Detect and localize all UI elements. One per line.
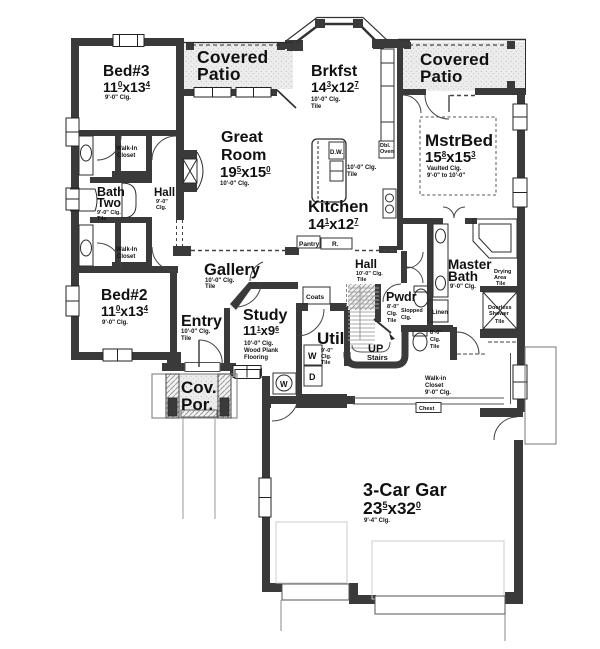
svg-text:Gallery: Gallery (204, 261, 261, 279)
svg-text:158x153: 158x153 (425, 149, 476, 166)
svg-text:Coats: Coats (306, 294, 324, 301)
svg-text:Chest: Chest (419, 406, 434, 412)
svg-text:Flooring: Flooring (244, 355, 268, 361)
svg-text:Closet: Closet (425, 383, 443, 389)
svg-text:Tile: Tile (205, 284, 216, 290)
svg-text:Pantry: Pantry (299, 241, 320, 248)
svg-text:Tile: Tile (496, 281, 505, 287)
svg-text:10'-0" Clg.: 10'-0" Clg. (311, 97, 341, 103)
svg-text:Bed#3: Bed#3 (103, 63, 150, 80)
svg-text:9'-0" Clg.: 9'-0" Clg. (102, 320, 128, 326)
svg-text:Bath: Bath (448, 269, 478, 284)
svg-text:3-Car Gar: 3-Car Gar (363, 480, 447, 500)
svg-text:Slopped: Slopped (401, 308, 423, 314)
svg-text:8'-0": 8'-0" (430, 330, 442, 336)
svg-text:Bed#2: Bed#2 (101, 287, 148, 304)
svg-text:235x320: 235x320 (363, 498, 421, 518)
svg-text:Tile: Tile (97, 216, 106, 222)
svg-text:10'-0" Clg.: 10'-0" Clg. (347, 165, 377, 171)
svg-text:9'-4" Clg.: 9'-4" Clg. (364, 518, 390, 524)
svg-text:110x134: 110x134 (103, 79, 151, 95)
svg-text:R.: R. (332, 241, 339, 248)
svg-text:Tile: Tile (357, 277, 366, 283)
svg-text:Wood Plank: Wood Plank (244, 348, 279, 354)
svg-text:Brkfst: Brkfst (311, 63, 358, 80)
svg-text:MstrBed: MstrBed (425, 131, 493, 150)
svg-text:Pwdr: Pwdr (386, 290, 417, 304)
svg-text:Walk-in: Walk-in (425, 376, 446, 382)
svg-text:110x134: 110x134 (101, 303, 149, 319)
svg-text:Oven: Oven (380, 149, 394, 155)
svg-text:10'-0" Clg.: 10'-0" Clg. (220, 181, 250, 187)
svg-text:Clg.: Clg. (430, 337, 441, 343)
svg-text:Util: Util (317, 329, 344, 348)
svg-text:Shower: Shower (489, 311, 510, 317)
svg-text:10'-0" Clg.: 10'-0" Clg. (181, 329, 211, 335)
svg-text:111x96: 111x96 (243, 323, 279, 338)
svg-text:Room: Room (221, 147, 266, 164)
svg-text:Tile: Tile (321, 360, 330, 366)
svg-text:141x127: 141x127 (308, 216, 359, 233)
svg-text:Closet: Closet (117, 153, 135, 159)
svg-text:Clg.: Clg. (401, 315, 412, 321)
svg-text:9'-0" to 10'-0": 9'-0" to 10'-0" (427, 173, 465, 179)
svg-text:Vaulted Clg.: Vaulted Clg. (427, 166, 462, 172)
svg-text:Hall: Hall (154, 187, 175, 199)
svg-text:143x127: 143x127 (311, 79, 359, 95)
svg-text:Entry: Entry (181, 313, 222, 330)
svg-text:Tile: Tile (347, 172, 358, 178)
svg-text:Kitchen: Kitchen (308, 198, 369, 216)
svg-text:Clg.: Clg. (387, 311, 398, 317)
svg-text:W: W (280, 380, 288, 389)
svg-text:10'-0" Clg.: 10'-0" Clg. (244, 341, 274, 347)
svg-text:Stairs: Stairs (367, 353, 388, 362)
svg-text:W: W (308, 351, 317, 361)
svg-text:D: D (309, 372, 316, 382)
svg-text:Tile: Tile (387, 318, 396, 324)
svg-text:9'-0" Clg.: 9'-0" Clg. (425, 390, 451, 396)
svg-text:Walk-In: Walk-In (116, 146, 137, 152)
svg-text:Patio: Patio (420, 67, 463, 86)
svg-text:Tile: Tile (311, 104, 322, 110)
svg-text:D.W.: D.W. (330, 150, 343, 156)
svg-text:Closet: Closet (117, 254, 135, 260)
svg-text:Hall: Hall (355, 257, 377, 271)
svg-text:Two: Two (97, 196, 121, 210)
svg-text:Tile: Tile (430, 344, 439, 350)
svg-text:Por.: Por. (181, 395, 213, 414)
svg-text:195x150: 195x150 (220, 164, 271, 181)
svg-text:Clg.: Clg. (156, 205, 167, 211)
svg-text:Linen: Linen (432, 310, 448, 316)
svg-text:Tile: Tile (181, 336, 192, 342)
svg-text:Walk-In: Walk-In (116, 247, 137, 253)
svg-text:8'-0": 8'-0" (387, 304, 399, 310)
svg-text:Great: Great (221, 129, 263, 146)
svg-text:Tile: Tile (495, 319, 504, 325)
svg-text:Study: Study (243, 307, 288, 324)
svg-text:9'-0" Clg.: 9'-0" Clg. (450, 284, 476, 290)
svg-text:Patio: Patio (197, 64, 241, 84)
svg-text:9'-0" Clg.: 9'-0" Clg. (105, 95, 131, 101)
